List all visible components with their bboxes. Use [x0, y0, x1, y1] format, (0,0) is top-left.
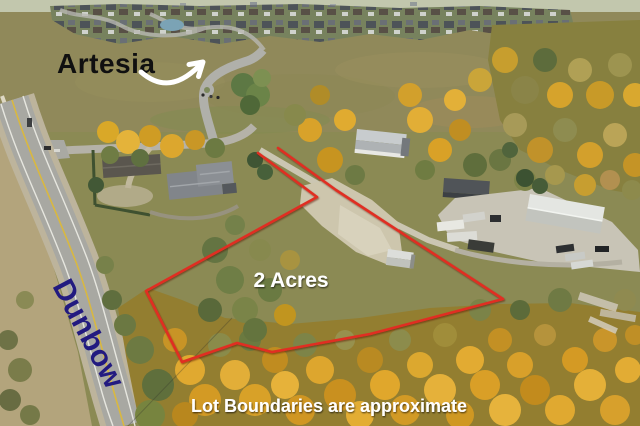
car — [209, 95, 212, 98]
vehicle-on-road — [27, 118, 32, 127]
lot-size-label: 2 Acres — [253, 269, 328, 292]
driveway-loop — [97, 185, 153, 207]
vehicle-at-intersection — [44, 146, 51, 150]
disclaimer-label: Lot Boundaries are approximate — [191, 396, 467, 416]
car — [216, 96, 219, 99]
pond — [160, 19, 184, 31]
vehicle-at-intersection — [54, 149, 60, 152]
aerial-photo: Artesia Dunbow 2 Acres Lot Boundaries ar… — [0, 0, 640, 426]
car — [201, 93, 204, 96]
